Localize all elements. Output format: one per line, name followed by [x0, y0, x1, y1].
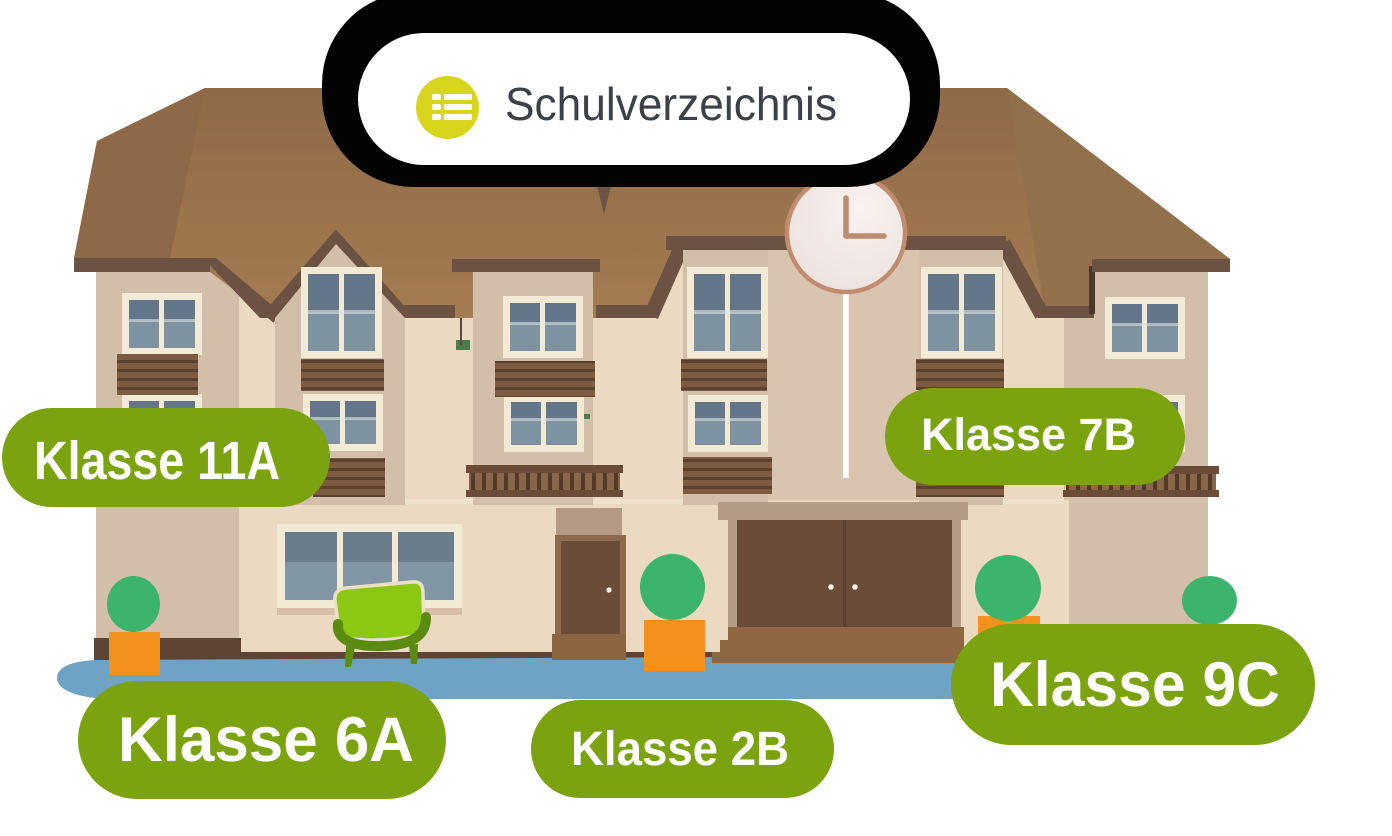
svg-text:Klasse 11A: Klasse 11A — [34, 431, 280, 491]
svg-text:Klasse 9C: Klasse 9C — [990, 650, 1280, 720]
svg-text:Klasse 2B: Klasse 2B — [571, 723, 789, 776]
svg-text:Schulverzeichnis: Schulverzeichnis — [505, 78, 837, 130]
svg-text:Klasse 6A: Klasse 6A — [118, 705, 414, 775]
svg-text:Klasse 7B: Klasse 7B — [921, 409, 1136, 460]
